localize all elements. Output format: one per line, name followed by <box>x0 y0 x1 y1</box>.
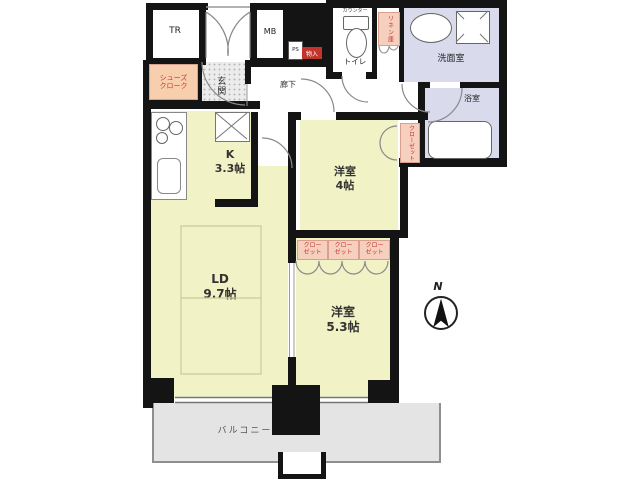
north-label: N <box>428 280 448 294</box>
wall <box>400 164 408 238</box>
ld-window <box>175 398 272 403</box>
closet-room4: クローゼット <box>400 123 420 163</box>
compass-icon <box>424 296 458 330</box>
closet-label: クローゼット <box>407 125 414 161</box>
entrance-label: 玄関 <box>214 69 225 103</box>
wall <box>390 230 399 403</box>
living-dining-floor <box>151 206 288 398</box>
bathtub <box>428 121 492 159</box>
storage-label: 物入 <box>306 49 318 58</box>
linen-folding-doors <box>379 46 398 53</box>
washroom-label: 洗面室 <box>418 54 484 65</box>
toilet-door-arc <box>342 76 368 102</box>
wall <box>215 199 258 207</box>
wall <box>143 101 260 109</box>
closet-3: クロー ゼット <box>359 240 390 260</box>
ld-entry-strip <box>258 166 288 207</box>
closet-label: クロー ゼット <box>334 243 352 257</box>
kitchen-sink <box>157 158 181 194</box>
storage-box: 物入 <box>302 47 322 59</box>
wall <box>326 0 507 8</box>
compass-needle <box>426 298 456 328</box>
refrigerator-space <box>215 112 250 142</box>
stove-burner <box>169 121 183 135</box>
toilet-label: トイレ <box>333 57 377 66</box>
hallway-label: 廊下 <box>268 80 308 90</box>
linen-closet: リネン庫 <box>378 12 400 46</box>
linen-closet-label: リネン庫 <box>386 15 393 43</box>
wall <box>366 72 377 79</box>
wall <box>326 72 342 79</box>
western-room4-label: 洋室 4帖 <box>315 165 375 193</box>
wall <box>336 112 428 120</box>
meter-box-label: MB <box>256 27 284 37</box>
pillar <box>143 396 153 408</box>
closet-1: クロー ゼット <box>297 240 328 260</box>
entrance-double-door-arc <box>206 12 250 58</box>
bedroom-window <box>320 398 368 403</box>
living-dining-label: LD 9.7帖 <box>190 272 250 302</box>
stove-burner <box>156 117 170 131</box>
sliding-door-opening <box>288 263 296 357</box>
shoes-closet-label: シューズ クローク <box>160 74 188 90</box>
washbasin <box>410 13 452 43</box>
closet-label: クロー ゼット <box>303 243 321 257</box>
stove-burner <box>156 132 168 144</box>
washer-space <box>456 11 490 44</box>
floor-plan: PS 物入 シューズ クローク リネン庫 クローゼット クロー ゼット クロー … <box>0 0 640 480</box>
ps-label: PS <box>292 47 299 54</box>
bathroom-label: 浴室 <box>452 94 492 104</box>
wall <box>326 0 333 79</box>
wall <box>245 60 251 84</box>
balcony-label: バルコニー <box>200 426 290 437</box>
balcony-hatch <box>278 452 326 479</box>
counter-label: カウンター <box>333 8 377 14</box>
western-room53-label: 洋室 5.3帖 <box>312 305 374 335</box>
closet-label: クロー ゼット <box>365 243 383 257</box>
shoes-closet: シューズ クローク <box>149 64 198 100</box>
wall <box>460 82 507 88</box>
wall <box>293 230 405 238</box>
wall <box>245 60 326 67</box>
wall <box>199 3 206 65</box>
wall <box>143 60 151 403</box>
trunk-room-label: TR <box>160 26 190 37</box>
closet-2: クロー ゼット <box>328 240 359 260</box>
kitchen-label: K 3.3帖 <box>200 148 260 176</box>
pipe-space-box: PS <box>288 41 303 60</box>
wall <box>288 112 296 263</box>
toilet-bowl <box>346 28 367 58</box>
pillar <box>368 380 398 403</box>
